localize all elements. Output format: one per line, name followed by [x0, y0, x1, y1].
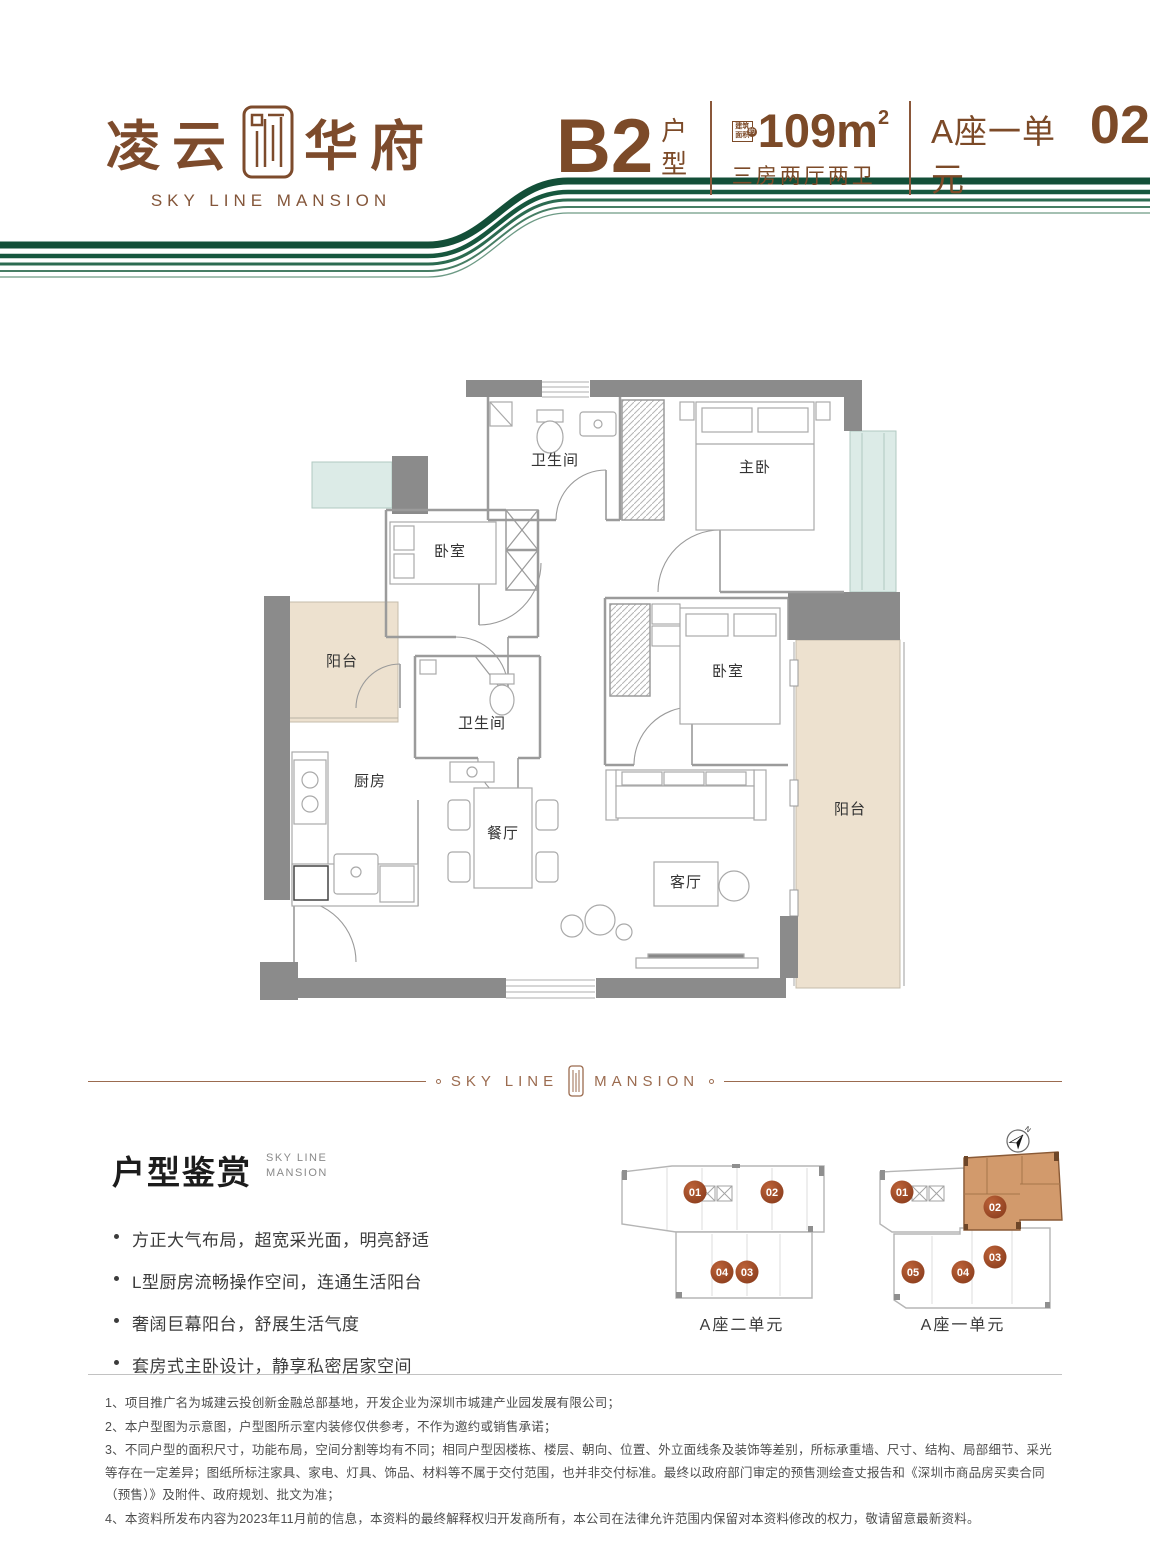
unit-location: A座一单元 02 [931, 94, 1150, 201]
window-hatches [506, 382, 595, 998]
room-label-bedroom-left: 卧室 [434, 543, 466, 560]
area-superscript: 2 [878, 107, 889, 130]
svg-text:03: 03 [989, 1252, 1001, 1264]
disclaimer-line: 4、本资料所发布内容为2023年11月前的信息，本资料的最终解释权归开发商所有，… [105, 1508, 1053, 1531]
bullet-icon [114, 1360, 119, 1365]
room-label-living: 客厅 [670, 874, 702, 891]
badge-u1-03: 03 [984, 1246, 1007, 1269]
location-number: 02 [1090, 94, 1150, 156]
bullet-icon [114, 1318, 119, 1323]
unit-title-block: B2 户型 建筑面积约 109m 2 三房两厅两卫 A座一单元 02 [556, 94, 1150, 201]
room-label-kitchen: 厨房 [354, 773, 386, 790]
feature-item: L型厨房流畅操作空间，连通生活阳台 [112, 1268, 572, 1293]
bullet-icon [114, 1276, 119, 1281]
disclaimer-line: 1、项目推广名为城建云投创新金融总部基地，开发企业为深圳市城建产业园发展有限公司… [105, 1392, 1053, 1415]
feature-item: 奢阔巨幕阳台，舒展生活气度 [112, 1310, 572, 1335]
feature-item: 方正大气布局，超宽采光面，明亮舒适 [112, 1226, 572, 1251]
svg-text:02: 02 [989, 1202, 1001, 1214]
features-list: 方正大气布局，超宽采光面，明亮舒适 L型厨房流畅操作空间，连通生活阳台 奢阔巨幕… [112, 1226, 572, 1377]
room-label-bath2: 卫生间 [458, 715, 506, 732]
key-plan: 01 02 04 03 01 02 05 04 03 A座二单元 A座一单元 N [612, 1124, 1067, 1344]
features-title: 户型鉴赏 [112, 1146, 252, 1194]
divider-text-left: SKY LINE [451, 1073, 558, 1090]
building-unit1-footprint [880, 1152, 1062, 1308]
logo-text-left: 凌云 [106, 102, 238, 181]
svg-text:01: 01 [689, 1187, 701, 1199]
brand-logo-cn: 凌云 华府 [106, 102, 436, 181]
svg-text:01: 01 [896, 1187, 908, 1199]
features-subtitle-line2: MANSION [266, 1166, 328, 1181]
room-label-bedroom-right: 卧室 [712, 663, 744, 680]
disclaimer-line: 3、不同户型的面积尺寸，功能布局，空间分割等均有不同；相同户型因楼栋、楼层、朝向… [105, 1439, 1053, 1507]
divider-line-right [724, 1081, 1062, 1082]
divider-text-right: MANSION [594, 1073, 699, 1090]
badge-u2-01: 01 [684, 1181, 707, 1204]
badge-u1-02: 02 [984, 1196, 1007, 1219]
bullet-icon [114, 1234, 119, 1239]
area-approx-mark: 约 [747, 127, 757, 137]
features-section: 户型鉴赏 SKY LINE MANSION 方正大气布局，超宽采光面，明亮舒适 … [112, 1146, 572, 1394]
room-label-balcony-left: 阳台 [326, 653, 358, 670]
disclaimer-line: 2、本户型图为示意图，户型图所示室内装修仅供参考，不作为邀约或销售承诺； [105, 1416, 1053, 1439]
room-label-balcony-right: 阳台 [834, 801, 866, 818]
highlighted-unit-02 [964, 1152, 1062, 1230]
cluster-label-unit2: A座二单元 [700, 1316, 785, 1334]
unit-code: B2 [556, 111, 653, 183]
divider-line-left [88, 1081, 426, 1082]
brand-logo: 凌云 华府 SKY LINE MANSION [106, 102, 436, 211]
page: 凌云 华府 SKY LINE MANSION B2 户型 建筑面积约 109m … [0, 0, 1150, 1560]
svg-text:03: 03 [741, 1267, 753, 1279]
badge-u2-02: 02 [761, 1181, 784, 1204]
room-label-dining: 餐厅 [487, 825, 519, 842]
cluster-label-unit1: A座一单元 [921, 1316, 1006, 1334]
divider-dot [436, 1079, 441, 1084]
svg-text:04: 04 [716, 1267, 729, 1279]
brand-seal-icon [242, 105, 294, 179]
area-badge: 建筑面积约 [732, 121, 753, 142]
feature-item: 套房式主卧设计，静享私密居家空间 [112, 1352, 572, 1377]
feature-text: L型厨房流畅操作空间，连通生活阳台 [132, 1268, 422, 1293]
svg-text:05: 05 [907, 1267, 919, 1279]
room-label-bath1: 卫生间 [531, 452, 579, 469]
feature-text: 套房式主卧设计，静享私密居家空间 [132, 1352, 412, 1377]
floor-plan: 卫生间 主卧 卧室 卧室 卫生间 阳台 厨房 餐厅 客厅 阳台 [250, 360, 910, 1000]
divider-seal-icon [568, 1065, 584, 1097]
layout-description: 三房两厅两卫 [732, 160, 889, 190]
title-divider [909, 101, 911, 195]
svg-text:04: 04 [957, 1267, 970, 1279]
title-divider [710, 101, 712, 195]
feature-text: 奢阔巨幕阳台，舒展生活气度 [132, 1310, 360, 1335]
section-divider: SKY LINE MANSION [88, 1066, 1062, 1096]
badge-u2-03: 03 [736, 1261, 759, 1284]
features-subtitle: SKY LINE MANSION [266, 1151, 328, 1181]
divider-dot [709, 1079, 714, 1084]
unit-type-label: 户型 [661, 115, 690, 180]
badge-u1-01: 01 [891, 1181, 914, 1204]
logo-subtitle: SKY LINE MANSION [106, 191, 436, 211]
features-subtitle-line1: SKY LINE [266, 1151, 328, 1166]
disclaimer: 1、项目推广名为城建云投创新金融总部基地，开发企业为深圳市城建产业园发展有限公司… [105, 1392, 1053, 1531]
feature-text: 方正大气布局，超宽采光面，明亮舒适 [132, 1226, 430, 1251]
badge-u1-05: 05 [902, 1261, 925, 1284]
area-value: 109m [758, 105, 878, 157]
location-prefix: A座一单元 [931, 105, 1080, 201]
compass-icon: N [1007, 1124, 1034, 1152]
logo-text-right: 华府 [304, 102, 436, 181]
badge-u1-04: 04 [952, 1261, 975, 1284]
area-block: 建筑面积约 109m 2 三房两厅两卫 [732, 105, 889, 191]
room-label-master-bedroom: 主卧 [739, 459, 771, 476]
badge-u2-04: 04 [711, 1261, 734, 1284]
svg-text:02: 02 [766, 1187, 778, 1199]
